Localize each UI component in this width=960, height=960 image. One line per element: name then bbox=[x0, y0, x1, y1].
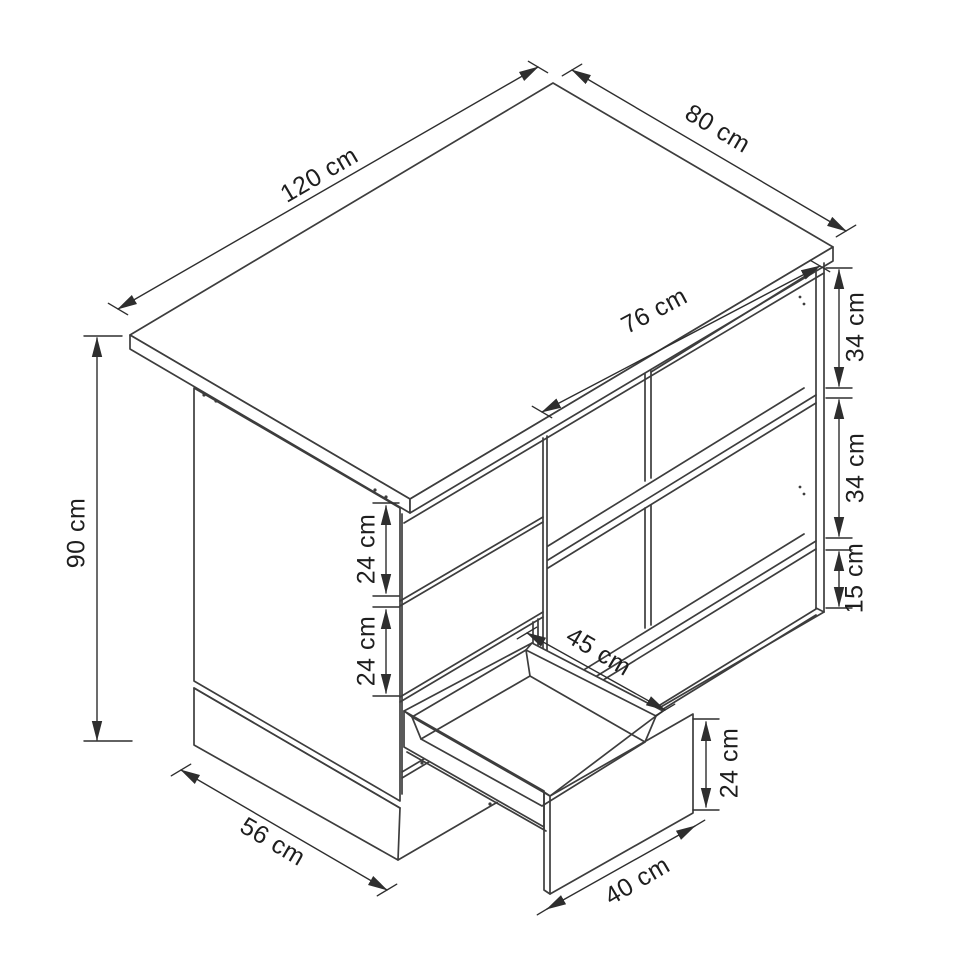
dimension-bottom-opening: 15 cm bbox=[826, 543, 869, 614]
dim-label-drawer-height: 24 cm bbox=[716, 728, 744, 799]
dim-label-bottom-opening: 15 cm bbox=[841, 543, 869, 614]
dimension-drawer-front-upper: 24 cm bbox=[353, 503, 399, 596]
dim-label-shelf-mid: 34 cm bbox=[842, 433, 870, 504]
drawer1-gap bbox=[400, 517, 543, 606]
dim-label-top-depth: 80 cm bbox=[680, 99, 755, 159]
dimension-shelf-mid-opening: 34 cm bbox=[826, 398, 870, 538]
dimension-base-depth: 56 cm bbox=[171, 764, 396, 896]
side-panel-base-band bbox=[194, 688, 400, 860]
diagram-canvas: 120 cm 80 cm 76 cm 90 cm 34 cm 34 cm 15 … bbox=[0, 0, 960, 960]
dim-label-drawer-front-lower: 24 cm bbox=[353, 616, 381, 687]
dimension-shelf-top-opening: 34 cm bbox=[826, 268, 870, 388]
furniture-dimension-diagram: 120 cm 80 cm 76 cm 90 cm 34 cm 34 cm 15 … bbox=[0, 0, 960, 960]
dimension-drawer-front-lower: 24 cm bbox=[353, 607, 399, 696]
shelf-1 bbox=[548, 388, 816, 568]
dim-label-shelf-top: 34 cm bbox=[842, 292, 870, 363]
dim-label-height: 90 cm bbox=[63, 498, 91, 569]
dimension-drawer-height: 24 cm bbox=[693, 719, 744, 810]
dim-label-drawer-front-upper: 24 cm bbox=[353, 514, 381, 585]
dimension-height: 90 cm bbox=[63, 336, 132, 741]
dim-label-base-depth: 56 cm bbox=[235, 812, 310, 872]
